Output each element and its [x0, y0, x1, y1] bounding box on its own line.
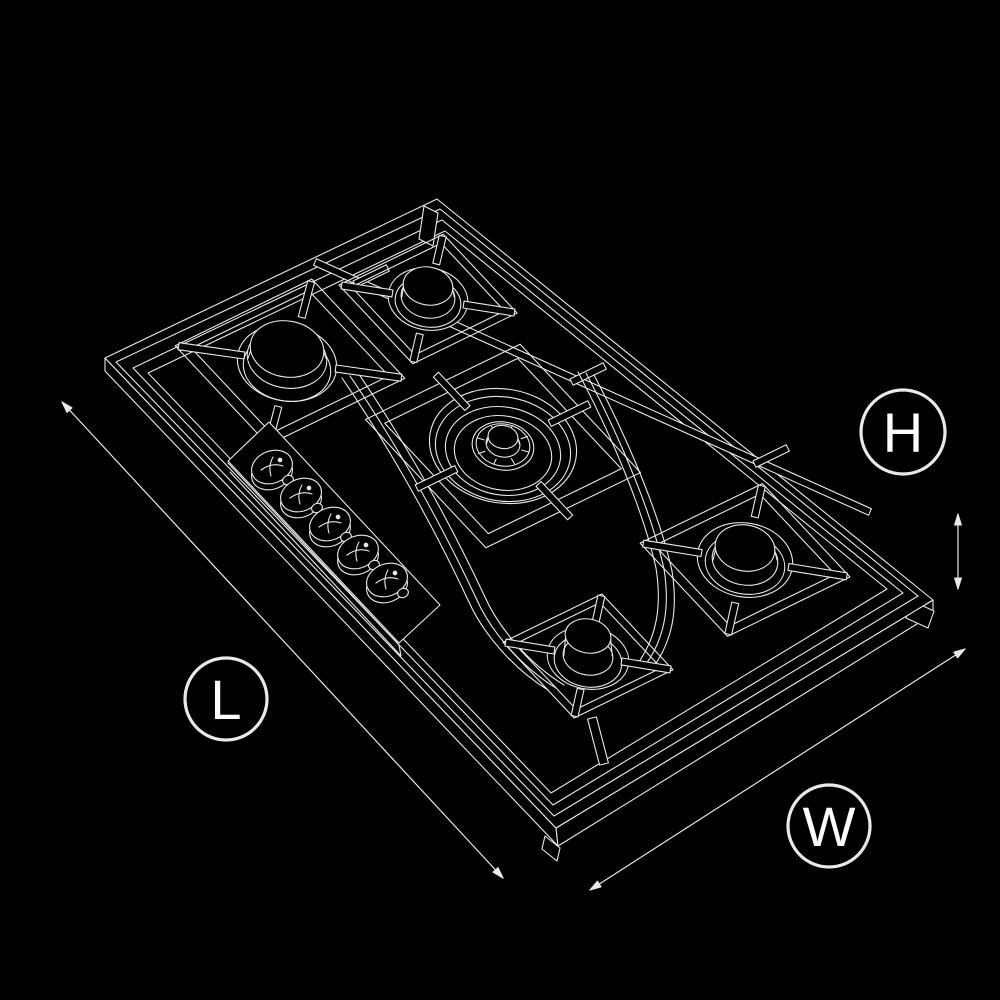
- width-badge-letter: W: [803, 795, 856, 858]
- height-badge-letter: H: [883, 401, 923, 464]
- height-dimension-arrow: [955, 514, 962, 589]
- cooktop-wireframe-svg: H L W: [0, 0, 1000, 1000]
- width-dimension-badge: W: [788, 785, 870, 867]
- length-badge-letter: L: [210, 668, 241, 731]
- cooktop-body: [105, 199, 934, 861]
- dimension-diagram: H L W: [0, 0, 1000, 1000]
- height-dimension-badge: H: [861, 390, 945, 474]
- length-dimension-badge: L: [185, 658, 267, 740]
